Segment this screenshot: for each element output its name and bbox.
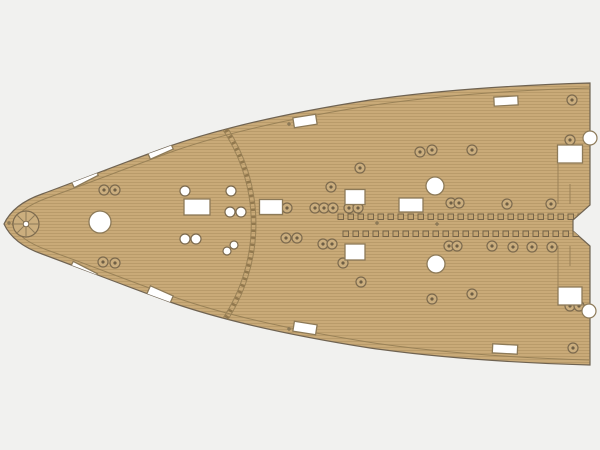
fitting-square-mark (543, 231, 549, 237)
ring-fitting-dot (356, 206, 359, 209)
ring-fitting-dot (295, 236, 298, 239)
fitting-square-mark (438, 214, 444, 220)
fitting-square-mark (553, 231, 559, 237)
ring-fitting-dot (568, 138, 571, 141)
ring-fitting-dot (530, 245, 533, 248)
fitting-square-mark (503, 231, 509, 237)
fitting-square-mark (523, 231, 529, 237)
small-hole-cutout (191, 234, 201, 244)
fitting-square-mark (353, 231, 359, 237)
ring-fitting-dot (341, 261, 344, 264)
ring-fitting-dot (359, 280, 362, 283)
fitting-square-mark (403, 231, 409, 237)
ring-fitting-dot (549, 202, 552, 205)
fitting-square-mark (473, 231, 479, 237)
rect-cutout (260, 200, 283, 215)
product-image (0, 0, 600, 450)
rect-cutout (558, 145, 583, 163)
fitting-square-mark (363, 231, 369, 237)
capstan-mark (13, 211, 39, 237)
edge-notch-circle (583, 131, 597, 145)
ring-fitting-dot (470, 292, 473, 295)
rect-cutout (558, 287, 582, 305)
edge-notch-circle (582, 304, 596, 318)
hole-cutout (427, 255, 445, 273)
small-hole-cutout (180, 234, 190, 244)
small-hole-cutout (230, 241, 238, 249)
rect-cutout (494, 96, 518, 106)
ring-fitting-dot (455, 244, 458, 247)
fitting-square-mark (488, 214, 494, 220)
hole-cutout (89, 211, 111, 233)
ring-fitting-dot (570, 98, 573, 101)
fitting-square-mark (393, 231, 399, 237)
fitting-square-mark (338, 214, 344, 220)
ring-fitting-dot (101, 260, 104, 263)
ring-fitting-dot (418, 150, 421, 153)
fitting-square-mark (443, 231, 449, 237)
ring-fitting-dot (550, 245, 553, 248)
fitting-square-mark (413, 231, 419, 237)
small-hole-cutout (225, 207, 235, 217)
ring-fitting-dot (113, 188, 116, 191)
fitting-square-mark (458, 214, 464, 220)
small-hole-cutout (223, 247, 231, 255)
ring-fitting-dot (329, 185, 332, 188)
fitting-square-mark (563, 231, 569, 237)
small-hole-cutout (236, 207, 246, 217)
ring-fitting-dot (571, 346, 574, 349)
fitting-square-mark (453, 231, 459, 237)
fitting-square-mark (388, 214, 394, 220)
fitting-square-mark (483, 231, 489, 237)
fitting-square-mark (358, 214, 364, 220)
ring-fitting-dot (430, 148, 433, 151)
fitting-square-mark (513, 231, 519, 237)
fitting-square-mark (538, 214, 544, 220)
fitting-square-mark (558, 214, 564, 220)
rect-cutout (345, 244, 365, 260)
ring-fitting-dot (430, 297, 433, 300)
ring-fitting-dot (322, 206, 325, 209)
small-hole-cutout (180, 186, 190, 196)
rect-cutout (345, 190, 365, 205)
ring-fitting-dot (321, 242, 324, 245)
fitting-square-mark (533, 231, 539, 237)
fitting-square-mark (408, 214, 414, 220)
ring-fitting-dot (511, 245, 514, 248)
fitting-square-mark (498, 214, 504, 220)
fitting-square-mark (348, 214, 354, 220)
fitting-square-mark (378, 214, 384, 220)
ring-fitting-dot (470, 148, 473, 151)
fitting-square-mark (373, 231, 379, 237)
fitting-square-mark (508, 214, 514, 220)
ring-fitting-dot (330, 242, 333, 245)
small-hole-cutout (226, 186, 236, 196)
fitting-square-mark (398, 214, 404, 220)
ring-fitting-dot (331, 206, 334, 209)
ring-fitting-dot (102, 188, 105, 191)
fitting-square-mark (448, 214, 454, 220)
ring-fitting-dot (347, 206, 350, 209)
fitting-square-mark (568, 214, 574, 220)
rect-cutout (184, 199, 210, 215)
fitting-square-mark (463, 231, 469, 237)
ring-fitting-dot (313, 206, 316, 209)
capstan-hub (23, 221, 29, 227)
ring-fitting-dot (457, 201, 460, 204)
fitting-square-mark (418, 214, 424, 220)
ring-fitting-dot (284, 236, 287, 239)
fitting-square-mark (518, 214, 524, 220)
ring-fitting-dot (447, 244, 450, 247)
fitting-square-mark (368, 214, 374, 220)
fitting-square-mark (428, 214, 434, 220)
fitting-square-mark (548, 214, 554, 220)
wooden-deck-sheet (0, 0, 600, 450)
ring-fitting-dot (490, 244, 493, 247)
fitting-square-mark (433, 231, 439, 237)
ring-fitting-dot (449, 201, 452, 204)
fitting-square-mark (423, 231, 429, 237)
fitting-square-mark (528, 214, 534, 220)
rect-cutout (492, 344, 517, 354)
ring-fitting-dot (505, 202, 508, 205)
fitting-square-mark (493, 231, 499, 237)
ring-fitting-dot (358, 166, 361, 169)
ring-fitting-dot (285, 206, 288, 209)
fitting-square-mark (468, 214, 474, 220)
ring-fitting-dot (113, 261, 116, 264)
fitting-square-mark (478, 214, 484, 220)
fitting-square-mark (343, 231, 349, 237)
fitting-square-mark (383, 231, 389, 237)
hole-cutout (426, 177, 444, 195)
rect-cutout (399, 198, 423, 212)
